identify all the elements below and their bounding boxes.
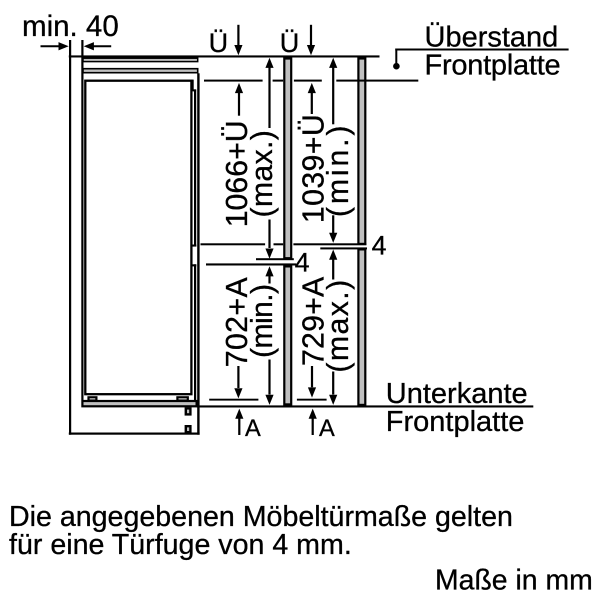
svg-text:4: 4 xyxy=(295,248,310,278)
svg-text:A: A xyxy=(245,416,261,442)
svg-text:Frontplatte: Frontplatte xyxy=(425,50,561,82)
svg-text:Frontplatte: Frontplatte xyxy=(386,406,525,438)
svg-text:(min.): (min.) xyxy=(246,285,279,358)
svg-text:Ü: Ü xyxy=(209,28,229,58)
svg-text:(max.): (max.) xyxy=(322,278,355,372)
svg-text:A: A xyxy=(319,416,335,442)
svg-text:4: 4 xyxy=(372,230,387,260)
svg-text:(min.): (min.) xyxy=(322,123,355,217)
svg-text:für eine Türfuge von 4 mm.: für eine Türfuge von 4 mm. xyxy=(9,529,352,561)
svg-text:Maße in mm: Maße in mm xyxy=(435,565,593,597)
svg-text:(max.): (max.) xyxy=(246,130,279,218)
svg-text:Ü: Ü xyxy=(280,28,300,58)
svg-text:min. 40: min. 40 xyxy=(22,10,119,43)
